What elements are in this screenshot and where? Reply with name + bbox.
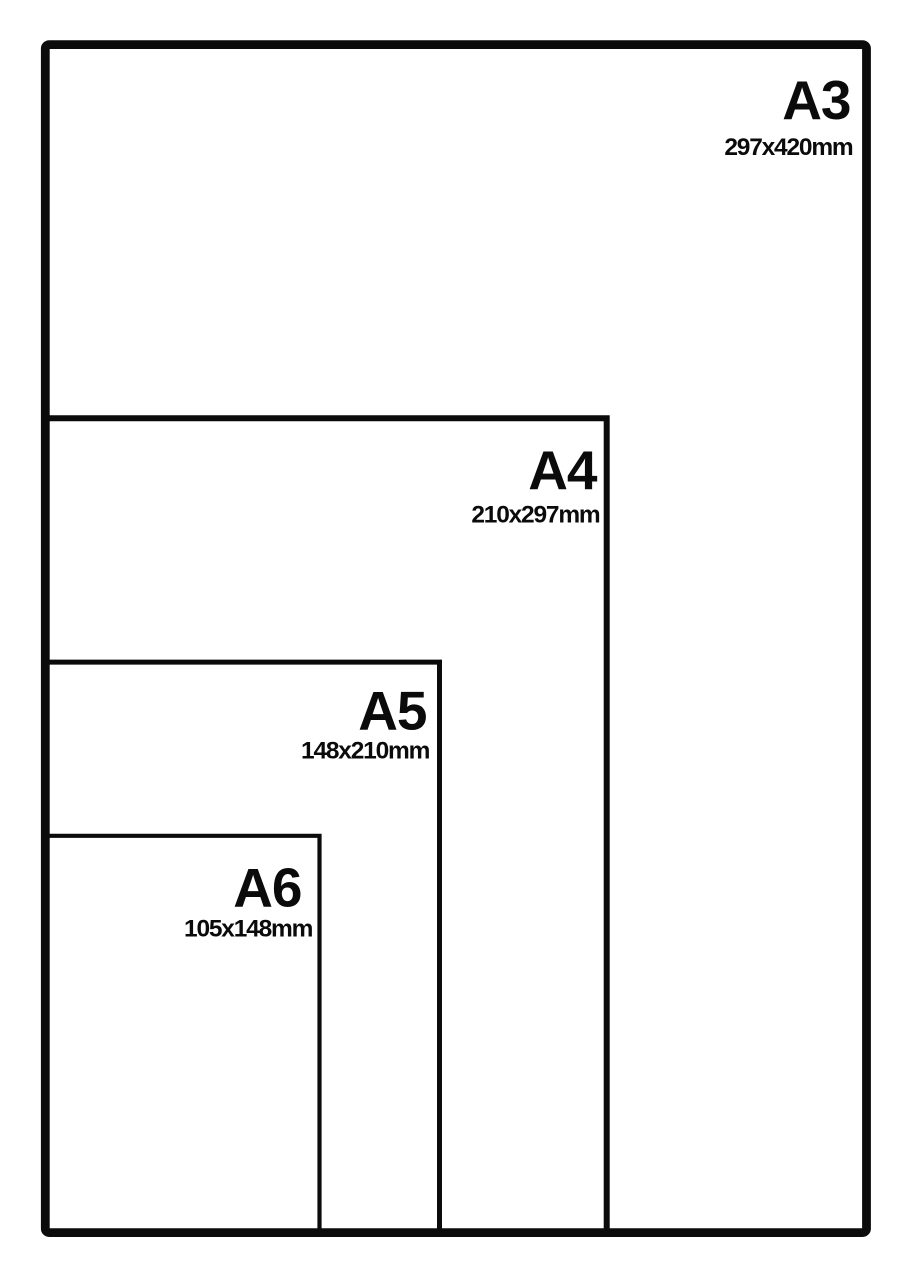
svg-text:210x297mm: 210x297mm — [471, 501, 600, 528]
svg-text:A6: A6 — [233, 857, 301, 919]
svg-text:A4: A4 — [528, 439, 598, 501]
svg-text:A5: A5 — [358, 680, 427, 742]
svg-text:297x420mm: 297x420mm — [724, 134, 853, 161]
svg-text:148x210mm: 148x210mm — [301, 738, 430, 765]
svg-text:105x148mm: 105x148mm — [184, 916, 313, 943]
svg-text:A3: A3 — [782, 69, 850, 131]
